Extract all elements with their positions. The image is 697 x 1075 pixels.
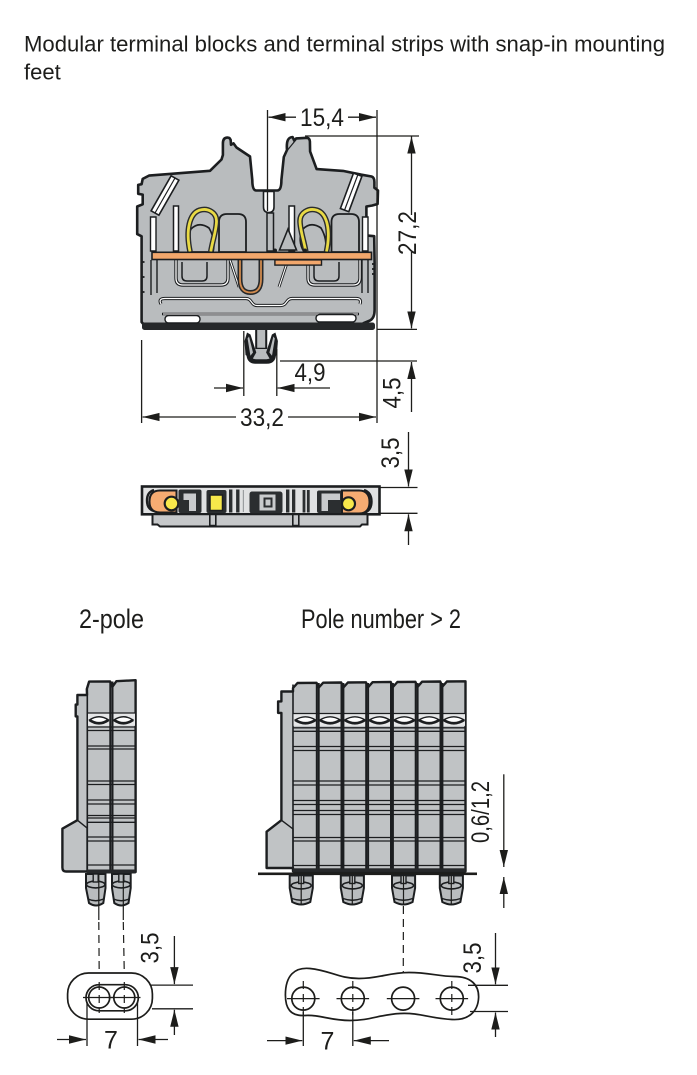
svg-text:3,5: 3,5 [137, 933, 165, 964]
svg-text:Modular terminal blocks and te: Modular terminal blocks and terminal str… [24, 32, 665, 57]
svg-text:33,2: 33,2 [240, 404, 284, 432]
svg-text:feet: feet [24, 59, 61, 84]
svg-text:7: 7 [321, 1028, 335, 1056]
svg-text:27,2: 27,2 [394, 211, 422, 255]
svg-text:15,4: 15,4 [300, 104, 344, 132]
svg-text:4,9: 4,9 [295, 359, 326, 387]
svg-text:2-pole: 2-pole [79, 604, 144, 634]
svg-text:3,5: 3,5 [459, 943, 487, 974]
svg-text:0,6/1,2: 0,6/1,2 [467, 781, 495, 843]
svg-text:4,5: 4,5 [379, 378, 407, 409]
svg-text:Pole number > 2: Pole number > 2 [301, 604, 461, 634]
svg-text:7: 7 [104, 1027, 118, 1055]
svg-text:3,5: 3,5 [377, 438, 405, 469]
